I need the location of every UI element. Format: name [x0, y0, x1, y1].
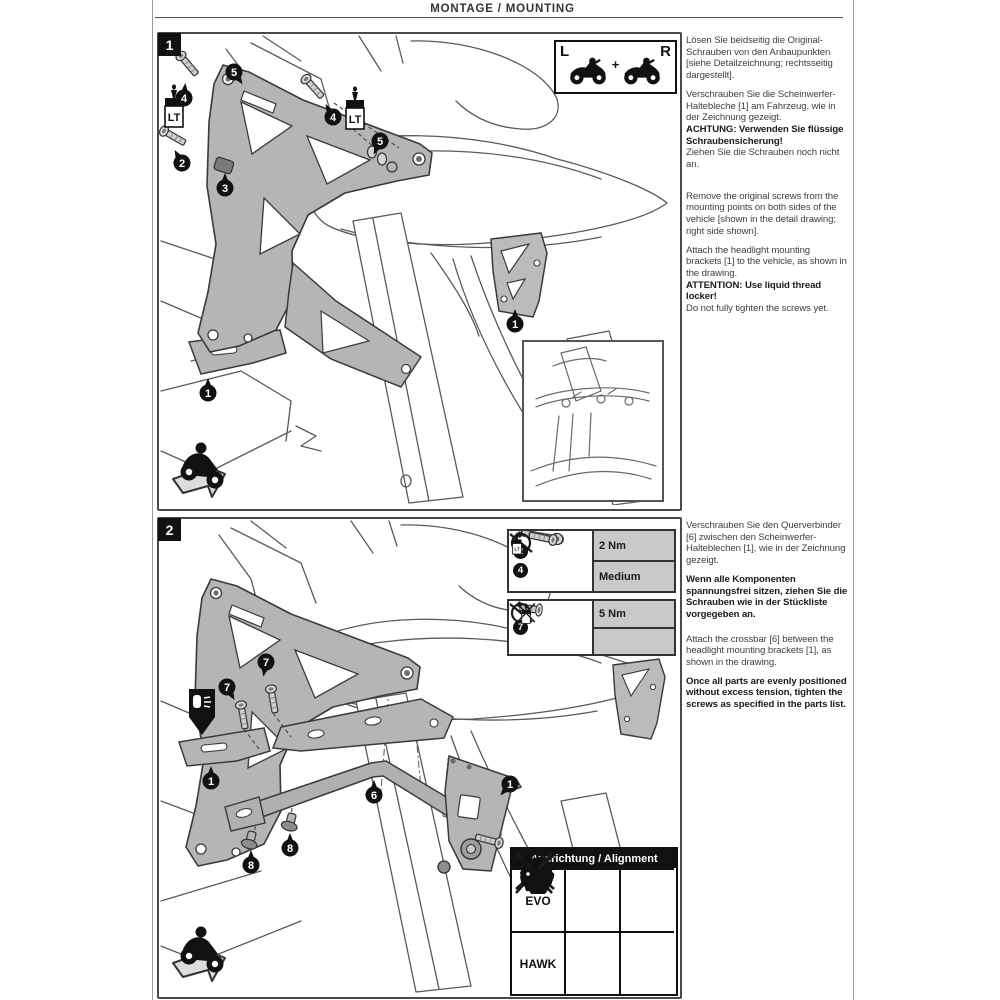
svg-text:8: 8: [287, 843, 293, 855]
left-right-sides-box: L R +: [554, 40, 677, 94]
plus-sign: +: [612, 57, 620, 72]
step1-panel: 1: [157, 32, 682, 511]
header-rule: [155, 17, 843, 18]
step1-de-p2: Verschrauben Sie die Scheinwerfer-Halteb…: [686, 89, 848, 124]
motorcycle-right-icon: [622, 56, 662, 86]
motorcycle-left-icon: [568, 56, 608, 86]
svg-text:LT: LT: [349, 114, 362, 126]
screw-4-right: [299, 72, 326, 100]
nut: [387, 162, 397, 172]
right-mount-plate: [438, 756, 521, 873]
step1-en-p1: Remove the original screws from the moun…: [686, 191, 848, 238]
step2-en-p1: Attach the crossbar [6] between the head…: [686, 634, 848, 669]
right-margin-rule: [853, 0, 854, 1000]
svg-text:LT: LT: [168, 112, 181, 124]
svg-text:LT: LT: [514, 547, 519, 552]
svg-text:6: 6: [371, 790, 377, 802]
torque-value: 2 Nm: [599, 540, 626, 552]
approved-headlight-icon: [512, 849, 558, 893]
step1-en-p3: Do not fully tighten the screws yet.: [686, 303, 848, 315]
svg-text:7: 7: [263, 657, 269, 669]
step2-number-badge: 2: [158, 518, 181, 541]
svg-text:2: 2: [179, 158, 185, 170]
step2-de-p1: Verschrauben Sie den Querverbinder [6] z…: [686, 520, 848, 567]
step2-panel: 2: [157, 517, 682, 999]
riding-direction-icon: [173, 443, 225, 498]
threadlocker-grade: Medium: [599, 571, 641, 583]
torque-spec-box-1: 2 4 2 Nm: [507, 529, 676, 593]
page-title: MONTAGE / MOUNTING: [152, 3, 853, 15]
svg-text:4: 4: [330, 112, 337, 124]
step1-de-warning: ACHTUNG: Verwenden Sie flüssige Schraube…: [686, 124, 848, 147]
step2-de-warning: Wenn alle Komponenten spannungsfrei sitz…: [686, 574, 848, 621]
svg-text:3: 3: [222, 183, 228, 195]
step1-drawing: LT LT: [159, 34, 676, 505]
step1-de-p3: Ziehen Sie die Schrauben noch nicht an.: [686, 147, 848, 170]
right-headlight-bracket: [491, 233, 547, 317]
left-margin-rule: [152, 0, 153, 1000]
step2-en-warning: Once all parts are evenly positioned wit…: [686, 676, 848, 711]
step1-instructions: Lösen Sie beidseitig die Original-Schrau…: [686, 35, 848, 322]
callout-4: 4: [513, 563, 528, 578]
detail-inset: [523, 341, 663, 501]
svg-text:1: 1: [208, 776, 214, 788]
svg-text:8: 8: [248, 860, 254, 872]
svg-text:5: 5: [231, 67, 237, 79]
step1-de-p1: Lösen Sie beidseitig die Original-Schrau…: [686, 35, 848, 82]
svg-text:1: 1: [507, 779, 513, 791]
alignment-table: Ausrichtung / Alignment EVO HAWK: [510, 847, 678, 996]
right-headlight-bracket: [613, 659, 665, 739]
svg-text:1: 1: [512, 319, 518, 331]
svg-text:5: 5: [377, 136, 383, 148]
step2-instructions: Verschrauben Sie den Querverbinder [6] z…: [686, 520, 848, 711]
fastener-8b: [280, 812, 300, 833]
torque-spec-box-2: 7 5 Nm: [507, 599, 676, 656]
svg-text:4: 4: [181, 93, 188, 105]
threadlocker-bottle-icon: LT: [509, 531, 525, 557]
no-threadlocker-icon: [509, 601, 543, 627]
torque-value: 5 Nm: [599, 608, 626, 620]
step1-number-badge: 1: [158, 33, 181, 56]
step1-en-warning: ATTENTION: Use liquid thread locker!: [686, 280, 848, 303]
threadlocker-bottle-icon: LT: [346, 86, 364, 129]
manual-page: MONTAGE / MOUNTING 1: [0, 0, 1000, 1000]
washer-5b: [378, 153, 387, 165]
svg-text:1: 1: [205, 388, 211, 400]
svg-text:7: 7: [224, 682, 230, 694]
step1-en-p2: Attach the headlight mounting brackets […: [686, 245, 848, 280]
alignment-row-hawk: HAWK: [520, 957, 557, 971]
